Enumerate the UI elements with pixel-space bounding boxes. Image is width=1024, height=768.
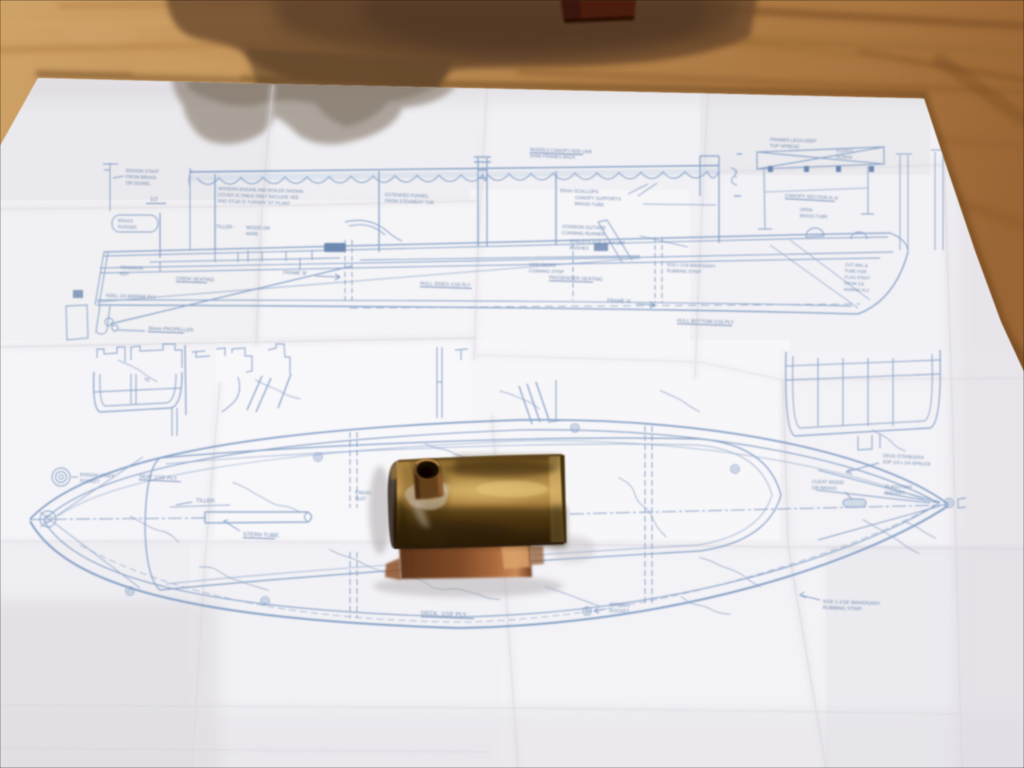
svg-text:BUSHES: BUSHES: [570, 245, 589, 251]
svg-text:FROM 1/4: FROM 1/4: [844, 281, 865, 287]
svg-text:OPEN: OPEN: [800, 207, 813, 212]
svg-text:SOCKET.: SOCKET.: [885, 490, 906, 497]
svg-text:FROM BRASS: FROM BRASS: [126, 174, 157, 180]
svg-text:SCREW: SCREW: [836, 154, 853, 160]
svg-text:FRAME 'A': FRAME 'A': [607, 298, 631, 305]
svg-text:TE: TE: [144, 377, 150, 382]
svg-text:SUIT: SUIT: [355, 496, 367, 502]
svg-text:TILLER.: TILLER.: [196, 498, 216, 505]
svg-text:WOOD OR: WOOD OR: [246, 225, 271, 232]
svg-text:SOCKET.: SOCKET.: [609, 608, 631, 615]
svg-text:TOP SPREAD: TOP SPREAD: [770, 143, 800, 149]
svg-text:KEY: KEY: [120, 271, 129, 276]
svg-text:BRASS TUBE: BRASS TUBE: [575, 201, 604, 207]
svg-text:1/2: 1/2: [150, 197, 158, 203]
svg-text:OR DOWEL: OR DOWEL: [126, 180, 152, 186]
svg-text:SOCKET: SOCKET: [80, 478, 100, 485]
svg-text:OR BRASS: OR BRASS: [812, 485, 837, 492]
svg-text:TILLER -: TILLER -: [216, 224, 236, 231]
svg-text:WIRE: WIRE: [246, 231, 259, 237]
svg-text:BRASS TUBE: BRASS TUBE: [800, 213, 828, 219]
svg-text:BRASS: BRASS: [118, 218, 133, 224]
svg-text:SIDE DECKS: SIDE DECKS: [529, 262, 556, 268]
svg-text:FRAME 'B': FRAME 'B': [283, 270, 307, 277]
svg-text:RUDDER: RUDDER: [118, 224, 137, 230]
svg-text:CLEAT WOOD: CLEAT WOOD: [812, 479, 845, 486]
svg-text:TRANSOM: TRANSOM: [120, 265, 143, 271]
svg-text:CLEATS: CLEATS: [836, 148, 853, 154]
svg-text:FLAGSTAFF: FLAGSTAFF: [885, 484, 913, 491]
